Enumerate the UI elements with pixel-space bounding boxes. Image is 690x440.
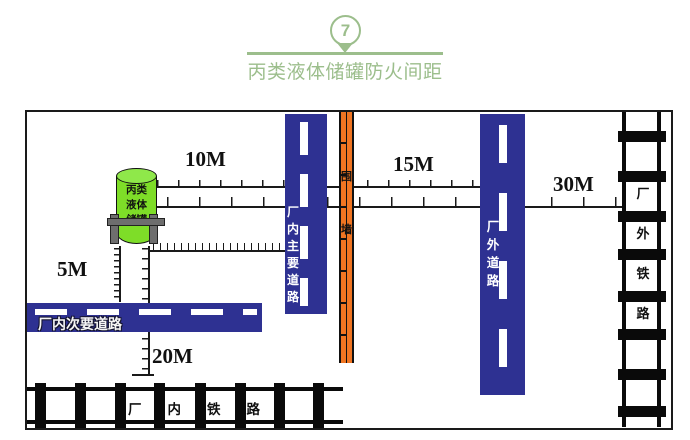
secondary-road-label: 厂内次要道路 <box>38 314 122 334</box>
tank-support-beam <box>107 218 165 226</box>
inner-railway-sleeper <box>313 383 324 428</box>
distance-label-20m: 20M <box>152 344 193 369</box>
ruler-30m-ticks <box>167 197 622 206</box>
ruler-fine-ticks <box>153 243 283 250</box>
inner-railway-sleeper <box>35 383 46 428</box>
distance-label-5m: 5M <box>57 257 87 282</box>
tank-label-line1: 丙类 <box>116 183 157 198</box>
outer-railway-sleeper <box>618 406 666 417</box>
outer-railway-label: 厂外铁路 <box>636 174 650 334</box>
distance-label-10m: 10M <box>185 147 226 172</box>
page-title: 丙类液体储罐防火间距 <box>235 57 455 84</box>
inner-railway-sleeper <box>115 383 126 428</box>
inner-railway-label: 厂内铁路 <box>128 398 286 418</box>
inner-railway-sleeper <box>75 383 86 428</box>
diagram-frame: 10M 15M 30M 5M 20M 厂内次要道路 厂内主要道路 围墙 厂外道路 <box>25 110 673 430</box>
step-number: 7 <box>341 21 350 41</box>
outer-road-label: 厂外道路 <box>486 218 500 290</box>
title-divider <box>247 52 443 55</box>
page: 7 丙类液体储罐防火间距 10M 15M 30M 5M 20M 厂内次要道路 厂… <box>0 0 690 440</box>
outer-road-centerline <box>499 125 507 383</box>
main-road-centerline <box>300 122 308 306</box>
outer-railway-sleeper <box>618 131 666 142</box>
outer-railway-sleeper <box>618 369 666 380</box>
ruler-fine-line <box>149 250 285 252</box>
distance-label-30m: 30M <box>553 172 594 197</box>
distance-label-15m: 15M <box>393 152 434 177</box>
tank-top <box>116 168 157 184</box>
step-number-badge: 7 <box>330 15 361 46</box>
ruler-20m-end-mark <box>132 374 154 376</box>
ruler-5m-line <box>119 246 121 302</box>
ruler-30m-line <box>149 206 622 208</box>
tank-label-line2: 液体 <box>116 198 157 213</box>
boundary-wall-label: 围墙 <box>341 151 352 257</box>
main-road-label: 厂内主要道路 <box>286 204 300 306</box>
